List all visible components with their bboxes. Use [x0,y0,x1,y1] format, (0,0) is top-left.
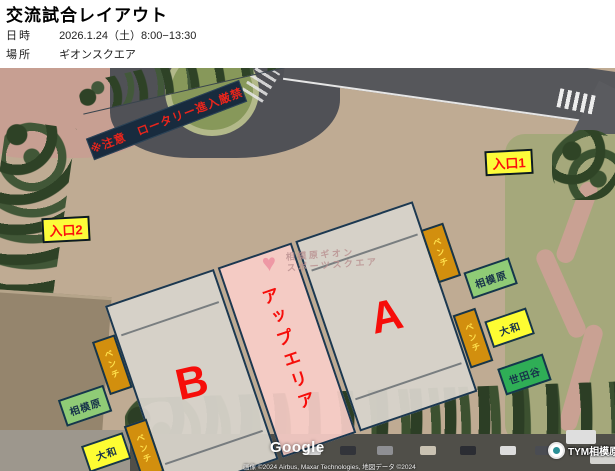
field-line [165,430,263,465]
vehicle [377,446,393,455]
vehicle [340,446,356,455]
vehicle [460,446,476,455]
field-line [121,301,219,336]
map-copyright: 画像 ©2024 Airbus, Maxar Technologies, 地図デ… [243,461,416,471]
satellite-map: B アップエリア A ベンチ ベンチ ベンチ ベンチ 相模原 大和 世田谷 相模… [0,68,615,471]
entrance-2-label: 入口2 [41,216,90,243]
vehicle [420,446,436,455]
datetime-value: 2026.1.24（土）8:00−13:30 [59,30,196,42]
google-logo: Google [270,439,325,456]
vehicle [500,446,516,455]
trees [552,130,615,200]
partner-logo-icon [548,442,565,459]
partner-logo-text: TYM相模原 [568,443,615,458]
datetime-label: 日時 [6,27,56,43]
entrance-1-label: 入口1 [484,149,533,176]
partner-logo: TYM相模原 [548,442,615,459]
map-watermark: 相模原ギオン スポーツスクエア [286,252,287,263]
place-row: 場所 ギオンスクエア [6,46,136,62]
field-line [355,362,462,400]
field-b-label: B [132,346,251,419]
layout-page: 交流試合レイアウト 日時 2026.1.24（土）8:00−13:30 場所 ギ… [0,0,615,471]
place-label: 場所 [6,46,56,62]
page-title: 交流試合レイアウト [6,1,168,26]
datetime-row: 日時 2026.1.24（土）8:00−13:30 [6,27,196,43]
place-value: ギオンスクエア [59,49,136,61]
field-a-label: A [322,279,450,354]
heart-icon: ♥ [261,250,277,279]
